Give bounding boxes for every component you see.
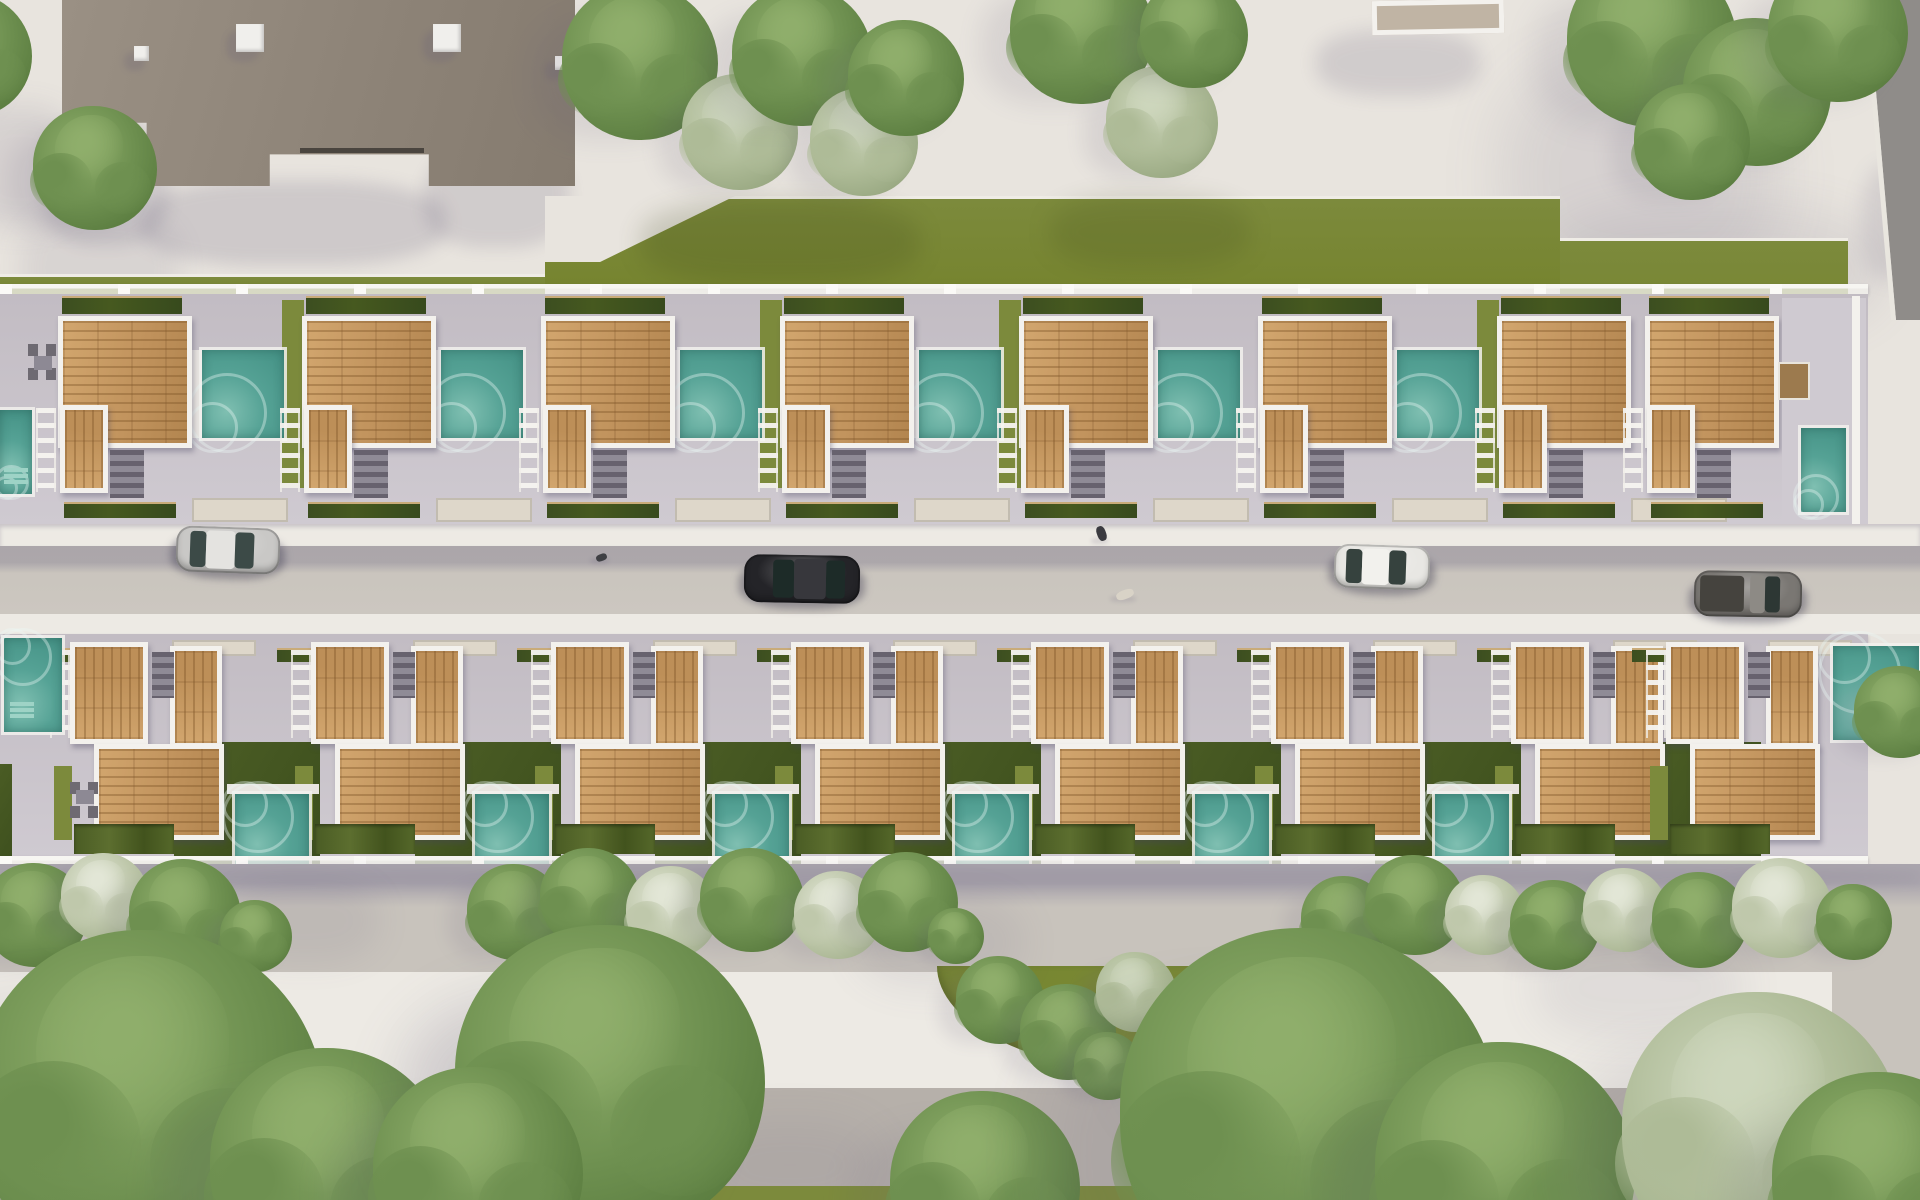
villa-garage-court — [914, 498, 1010, 522]
villa-pergola-ladder — [1011, 650, 1031, 738]
boundary-wall — [1852, 296, 1860, 536]
tree-foliage-lobe — [1363, 893, 1413, 941]
car-rear-window — [1346, 549, 1363, 584]
villa-lower-deck — [543, 405, 591, 493]
villa-pergola-ladder — [280, 408, 300, 492]
villa-back-hedge — [1501, 296, 1621, 314]
villa-upper-deck — [1131, 646, 1183, 748]
car-rear-window — [189, 531, 207, 568]
villa-lower-deck — [1666, 642, 1744, 744]
villa-pergola-ladder — [758, 408, 778, 492]
villa-upper-deck — [411, 646, 463, 748]
patio-chair — [70, 806, 80, 818]
roof-vent-box — [236, 24, 264, 52]
small-building-roof — [1372, 0, 1505, 35]
villa-back-hedge — [784, 296, 904, 314]
car-white-sedan — [1333, 543, 1430, 590]
tree-foliage-lobe — [679, 118, 737, 173]
villa-back-hedge — [306, 296, 426, 314]
tree-foliage-lobe — [956, 933, 981, 957]
pool-water-ripple — [187, 402, 238, 453]
villa-garage-court — [675, 498, 771, 522]
car-windshield — [1388, 550, 1406, 585]
villa-entry-stairs — [1113, 652, 1135, 698]
tree-foliage-lobe — [558, 43, 636, 117]
tree-foliage-lobe — [1631, 128, 1689, 183]
patio-chair — [88, 806, 98, 818]
patio-chair — [28, 344, 38, 356]
tree-foliage-lobe — [1563, 21, 1648, 102]
villa-lower-deck — [60, 405, 108, 493]
tree-foliage-lobe — [59, 886, 103, 928]
villa-pergola-ladder — [1623, 408, 1643, 492]
villa-shrub-planter — [1515, 824, 1615, 854]
swimming-pool — [1397, 350, 1479, 438]
car-windshield — [235, 532, 255, 569]
pool-steps — [4, 474, 28, 478]
street-asphalt — [0, 546, 1920, 614]
villa-entry-stairs — [873, 652, 895, 698]
villa-upper-deck — [170, 646, 222, 748]
tree-foliage-lobe — [1852, 701, 1898, 745]
villa-lower-deck — [1031, 642, 1109, 744]
cast-shadow — [1316, 30, 1480, 96]
villa-shrub-planter — [1035, 824, 1135, 854]
car-gray-pickup — [1694, 570, 1803, 618]
swimming-pool — [1158, 350, 1240, 438]
villa-entry-stairs — [832, 450, 866, 498]
villa-shrub-planter — [74, 824, 174, 854]
swimming-pool — [680, 350, 762, 438]
car-black-suv — [744, 554, 861, 604]
villa-pergola-ladder — [36, 408, 56, 492]
tree-foliage-lobe — [807, 129, 861, 180]
villa-lower-deck — [791, 642, 869, 744]
tree-foliage-lobe — [1650, 908, 1698, 954]
car-body — [1694, 570, 1803, 618]
villa-entry-stairs — [1748, 652, 1770, 698]
car-body — [1333, 543, 1430, 590]
tree-foliage-lobe — [95, 162, 151, 215]
car-rear-window — [826, 560, 845, 598]
tree-foliage-lobe — [792, 904, 836, 946]
tree-foliage-lobe — [1581, 900, 1623, 940]
villa-lower-deck — [1021, 405, 1069, 493]
pool-steps — [4, 480, 28, 484]
villa-lower-deck — [782, 405, 830, 493]
sidewalk-upper — [0, 524, 1920, 546]
edge-pool-right — [1801, 428, 1846, 512]
tree-foliage-lobe — [1194, 29, 1243, 75]
tree-foliage-lobe — [1730, 896, 1780, 944]
aerial-render-scene — [0, 0, 1920, 1200]
villa-shrub-planter — [795, 824, 895, 854]
tree-foliage-lobe — [1103, 108, 1159, 161]
patio-table — [76, 790, 94, 804]
villa-pergola-ladder — [1646, 650, 1666, 738]
villa-front-hedge — [786, 502, 898, 518]
tree-foliage-lobe — [1094, 982, 1134, 1020]
villa-entry-stairs — [110, 450, 144, 498]
tree-foliage-lobe — [864, 137, 913, 183]
villa-upper-deck — [651, 646, 703, 748]
tree-foliage-lobe — [927, 929, 955, 956]
side-garden-column — [1650, 766, 1668, 840]
car-roof — [794, 559, 827, 600]
villa-lower-deck — [1647, 405, 1695, 493]
villa-pergola-ladder — [771, 650, 791, 738]
sidewalk-lower — [0, 614, 1920, 634]
tree-foliage-lobe — [1814, 913, 1852, 949]
patio-table — [1778, 362, 1810, 400]
tree-foliage-lobe — [1508, 914, 1553, 957]
roof-vent-box — [433, 24, 461, 52]
car-roof — [1361, 548, 1389, 585]
villa-entry-stairs — [1549, 450, 1583, 498]
villa-pergola-ladder — [1491, 650, 1511, 738]
villa-lower-deck — [304, 405, 352, 493]
villa-back-hedge — [1023, 296, 1143, 314]
villa-lower-deck — [1271, 642, 1349, 744]
villa-pergola-ladder — [1475, 408, 1495, 492]
villa-lower-deck — [311, 642, 389, 744]
villa-front-hedge — [64, 502, 176, 518]
roof-vent-box — [134, 46, 149, 61]
villa-upper-deck — [1766, 646, 1818, 748]
villa-back-hedge — [1649, 296, 1769, 314]
tree-foliage-lobe — [729, 39, 799, 106]
swimming-pool — [919, 350, 1001, 438]
pool-steps — [10, 708, 34, 712]
car-silver-sedan — [175, 525, 281, 575]
villa-entry-stairs — [1353, 652, 1375, 698]
villa-garage-court — [436, 498, 532, 522]
villa-pergola-ladder — [519, 408, 539, 492]
villa-lower-deck — [551, 642, 629, 744]
villa-pergola-ladder — [291, 650, 311, 738]
villa-front-hedge — [1025, 502, 1137, 518]
villa-lower-deck — [1499, 405, 1547, 493]
villa-garage-court — [1153, 498, 1249, 522]
pool-steps — [4, 468, 28, 472]
upper-row-fence — [0, 284, 1868, 294]
villa-pergola-ladder — [1251, 650, 1271, 738]
car-bed-rim — [1702, 577, 1741, 610]
car-windshield — [1765, 576, 1781, 612]
villa-pergola-ladder — [1236, 408, 1256, 492]
car-cab-roof — [1750, 575, 1766, 613]
villa-front-hedge — [1651, 502, 1763, 518]
villa-back-hedge — [62, 296, 182, 314]
patio-table — [34, 356, 52, 370]
villa-entry-stairs — [1071, 450, 1105, 498]
car-roof — [206, 530, 236, 569]
villa-back-hedge — [1262, 296, 1382, 314]
villa-back-hedge — [545, 296, 665, 314]
tree-foliage-lobe — [856, 890, 906, 938]
cast-shadow — [140, 180, 446, 266]
villa-front-hedge — [1264, 502, 1376, 518]
villa-pergola-ladder — [997, 408, 1017, 492]
villa-front-hedge — [308, 502, 420, 518]
pool-water-ripple — [1793, 489, 1824, 520]
car-windshield — [773, 559, 795, 597]
villa-garage-court — [192, 498, 288, 522]
villa-shrub-planter — [1670, 824, 1770, 854]
villa-entry-stairs — [593, 450, 627, 498]
tree-foliage-lobe — [1838, 25, 1901, 85]
tree-foliage-lobe — [610, 1065, 750, 1197]
cast-shadow — [1050, 196, 1250, 268]
car-body — [175, 525, 281, 575]
villa-upper-deck — [1371, 646, 1423, 748]
tree-foliage-lobe — [954, 989, 998, 1031]
swimming-pool — [202, 350, 284, 438]
car-body — [744, 554, 861, 604]
tree-foliage-lobe — [845, 64, 903, 119]
tree-foliage-lobe — [1137, 21, 1191, 72]
pool-water-ripple — [1818, 631, 1871, 684]
villa-entry-stairs — [354, 450, 388, 498]
villa-entry-stairs — [152, 652, 174, 698]
tree-foliage-lobe — [1162, 116, 1212, 164]
building-entrance-line — [300, 148, 424, 153]
villa-front-hedge — [547, 502, 659, 518]
pool-steps — [10, 702, 34, 706]
villa-entry-stairs — [393, 652, 415, 698]
villa-shrub-planter — [315, 824, 415, 854]
villa-lower-deck — [70, 642, 148, 744]
tree-foliage-lobe — [1443, 905, 1483, 943]
villa-shrub-planter — [555, 824, 655, 854]
villa-pergola-ladder — [531, 650, 551, 738]
villa-entry-stairs — [1593, 652, 1615, 698]
tree-foliage-lobe — [30, 153, 92, 212]
villa-lower-deck — [1260, 405, 1308, 493]
villa-entry-stairs — [633, 652, 655, 698]
villa-garage-court — [1392, 498, 1488, 522]
pool-steps — [10, 714, 34, 718]
tree-foliage-lobe — [465, 900, 513, 946]
patio-chair — [46, 344, 56, 356]
villa-front-hedge — [1503, 502, 1615, 518]
villa-entry-stairs — [1697, 450, 1731, 498]
villa-shrub-planter — [1275, 824, 1375, 854]
side-garden-column — [54, 766, 72, 840]
tree-foliage-lobe — [1018, 1020, 1066, 1066]
villa-lower-deck — [1511, 642, 1589, 744]
swimming-pool — [441, 350, 523, 438]
villa-upper-deck — [891, 646, 943, 748]
cast-shadow — [640, 200, 920, 284]
villa-entry-stairs — [1310, 450, 1344, 498]
tree-foliage-lobe — [1765, 15, 1835, 82]
